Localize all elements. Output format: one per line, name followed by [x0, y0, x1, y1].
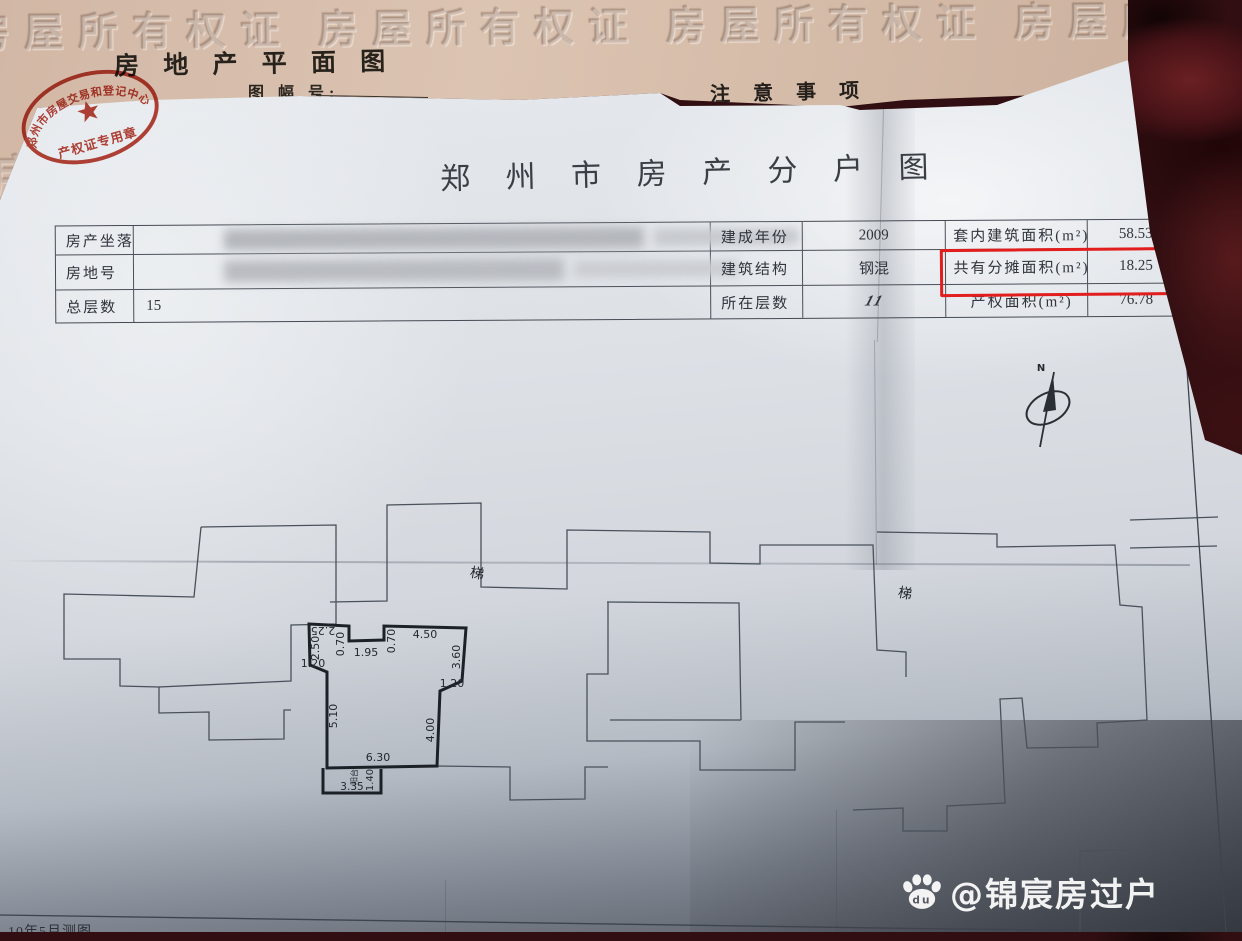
dimension-labels: 2.25 0.70 1.95 0.70 4.50 2.50 1.20 3.60 … [301, 565, 914, 793]
dim-label: 3.60 [450, 645, 463, 670]
dim-label: 5.10 [327, 704, 340, 729]
dim-label: 1.95 [354, 646, 379, 659]
survey-date-note: 10年5月测图 [8, 921, 92, 941]
dim-label: 4.50 [413, 628, 438, 641]
notice-title: 注 意 事 项 [710, 74, 869, 107]
dim-label: 3.35 [340, 781, 363, 793]
sheet-border-lines [0, 355, 1226, 932]
baidu-du-text: du [912, 895, 931, 907]
dim-label: 1.20 [301, 657, 326, 670]
compass-north-label: N [1037, 363, 1045, 374]
baidu-paw-icon: du [902, 874, 942, 910]
dim-label: 0.70 [385, 629, 398, 654]
publisher-watermark: du @锦宸房过户 [902, 868, 1160, 916]
dim-label: 2.25 [311, 624, 336, 637]
dim-label: 1.40 [365, 769, 376, 791]
dim-label: 0.70 [334, 632, 347, 657]
dim-label: 1.20 [440, 677, 465, 690]
watermark-handle: @锦宸房过户 [950, 868, 1160, 916]
floorplan-drawing: 2.25 0.70 1.95 0.70 4.50 2.50 1.20 3.60 … [0, 0, 1242, 932]
photo-of-floorplan-document: { "pink_sheet": { "title": "房 地 产 平 面 图"… [0, 0, 1242, 932]
certificate-title: 房 地 产 平 面 图 [114, 42, 395, 83]
dim-label: 6.30 [366, 751, 391, 764]
north-compass: N [1021, 363, 1075, 447]
dim-label: 4.00 [424, 718, 437, 743]
stamp-bottom-text: 产权证专用章 [56, 124, 139, 161]
floorplan-white-paper: 郑 州 市 房 产 分 户 图 房产坐落 建成年份 2009 套内建筑面积(m²… [0, 0, 1242, 932]
stair-label: 梯 [897, 585, 914, 603]
stair-label: 梯 [469, 565, 486, 583]
